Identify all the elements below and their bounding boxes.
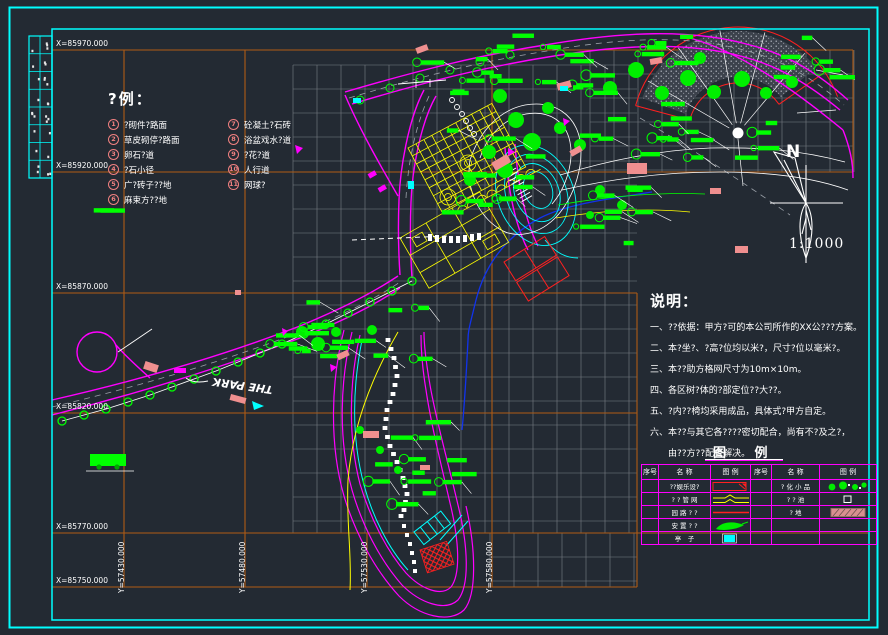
note-line: 六、本??与其它各????密切配合，尚有不?及之?， (650, 423, 878, 444)
symbol-greenery (820, 480, 877, 493)
scale-label: 1:1000 (789, 236, 844, 252)
symbol-pool (820, 493, 877, 506)
table-row-name: 安 置 ? ? (659, 519, 711, 532)
col-header: 名 称 (659, 465, 711, 480)
legend-table-underline (705, 459, 783, 461)
table-row-name: ??娱乐设? (659, 480, 711, 493)
key-item-label: ?砌件?路面 (124, 119, 167, 131)
note-line: 五、?内??椅均采用成品，具体式?甲方自定。 (650, 402, 878, 423)
key-item: 11网球? (228, 177, 291, 192)
symbol-amusement-facility (711, 480, 751, 493)
col-header: 序号 (642, 465, 659, 480)
key-item-number: 8 (228, 134, 239, 145)
crosswalk (428, 233, 481, 243)
x-coordinate-label: X=85770.000 (56, 522, 108, 531)
key-item-number: 2 (108, 134, 119, 145)
key-item-label: 卵石?道 (124, 149, 154, 161)
bus-icon (86, 454, 134, 471)
symbol-pipe-network (711, 493, 751, 506)
table-row-name: 园 路 ? ? (659, 506, 711, 519)
notes-title: 说明： (650, 290, 878, 311)
key-item-label: 广?砖子??地 (124, 179, 172, 191)
park-name-label: THE PARK (210, 375, 273, 397)
key-item: 8浴盆戏水?道 (228, 132, 291, 147)
key-item-label: 草皮砌停?路面 (124, 134, 180, 146)
note-line: 三、本??助方格网尺寸为10m×10m。 (650, 360, 878, 381)
x-coordinate-label: X=85870.000 (56, 282, 108, 291)
key-item-number: 7 (228, 119, 239, 130)
key-item: 1?砌件?路面 (108, 117, 228, 132)
key-item-number: 5 (108, 179, 119, 190)
table-row-name: ? 地 (772, 506, 820, 519)
tennis-courts (504, 237, 569, 301)
fan-center-marker (733, 128, 744, 139)
key-item: 4?石小径 (108, 162, 228, 177)
key-legend: ?例： 1?砌件?路面2草皮砌停?路面3卵石?道4?石小径5广?砖子??地6麻束… (108, 88, 368, 207)
key-item-label: 浴盆戏水?道 (244, 134, 291, 146)
symbol-pavilion (711, 532, 751, 545)
y-coordinate-label: Y=57480.000 (238, 542, 247, 593)
key-item: 9?花?道 (228, 147, 291, 162)
y-coordinate-label: Y=57530.000 (360, 542, 369, 593)
fan-plaza (636, 27, 843, 186)
tree-row (58, 277, 416, 425)
col-header: 图 例 (711, 465, 751, 480)
y-coordinate-label: Y=57430.000 (117, 542, 126, 593)
key-item-label: ?花?道 (244, 149, 270, 161)
key-item-number: 1 (108, 119, 119, 130)
trellis-structure (400, 103, 541, 288)
symbol-ground (820, 506, 877, 519)
table-row-name: ? ? 管 网 (659, 493, 711, 506)
title-block (29, 36, 52, 178)
key-item-label: ?石小径 (124, 164, 154, 176)
key-item: 5广?砖子??地 (108, 177, 228, 192)
x-coordinate-label: X=85920.000 (56, 161, 108, 170)
key-item-label: 人行道 (244, 164, 270, 176)
key-legend-title: ?例： (108, 88, 368, 109)
cad-sheet: THE PARK ?例： 1?砌件?路面2草皮砌停?路面3卵石?道4?石小径5广… (0, 0, 888, 635)
table-row-name: ? ? 池 (772, 493, 820, 506)
col-header: 序号 (751, 465, 772, 480)
key-item: 3卵石?道 (108, 147, 228, 162)
symbol-planting (711, 519, 751, 532)
key-item-label: 网球? (244, 179, 266, 191)
key-item-number: 3 (108, 149, 119, 160)
red-hatch-area (420, 541, 454, 572)
key-item-label: 麻束方??地 (124, 194, 167, 206)
note-line: 二、本?坐?、?高?位均以米?，尺寸?位以毫米?。 (650, 339, 878, 360)
key-item-number: 6 (108, 194, 119, 205)
symbol-park-road (711, 506, 751, 519)
x-coordinate-label: X=85750.000 (56, 576, 108, 585)
table-row-name: ? 化 小 品 (772, 480, 820, 493)
key-item: 2草皮砌停?路面 (108, 132, 228, 147)
notes-block: 说明： 一、??依据：甲方?可的本公司所作的XX公???方案。 二、本?坐?、?… (650, 290, 878, 465)
key-item: 7砼凝土?石砖 (228, 117, 291, 132)
key-item-label: 砼凝土?石砖 (244, 119, 291, 131)
north-label: N (786, 142, 800, 162)
key-item: 6麻束方??地 (108, 192, 228, 207)
col-header: 名 称 (772, 465, 820, 480)
x-coordinate-label: X=85970.000 (56, 39, 108, 48)
note-line: 一、??依据：甲方?可的本公司所作的XX公???方案。 (650, 318, 878, 339)
key-item: 10人行道 (228, 162, 291, 177)
key-item-number: 4 (108, 164, 119, 175)
key-item-number: 9 (228, 149, 239, 160)
col-header: 图 例 (820, 465, 877, 480)
x-coordinate-label: X=85820.000 (56, 402, 108, 411)
legend-table: 序号 名 称 图 例 序号 名 称 图 例 ??娱乐设? ? 化 小 品 ? ?… (641, 464, 877, 545)
note-line: 四、各区树?体的?部定位??大??。 (650, 381, 878, 402)
table-row-name: 亭 子 (659, 532, 711, 545)
key-item-number: 11 (228, 179, 239, 190)
y-coordinate-label: Y=57580.000 (485, 542, 494, 593)
key-item-number: 10 (228, 164, 239, 175)
